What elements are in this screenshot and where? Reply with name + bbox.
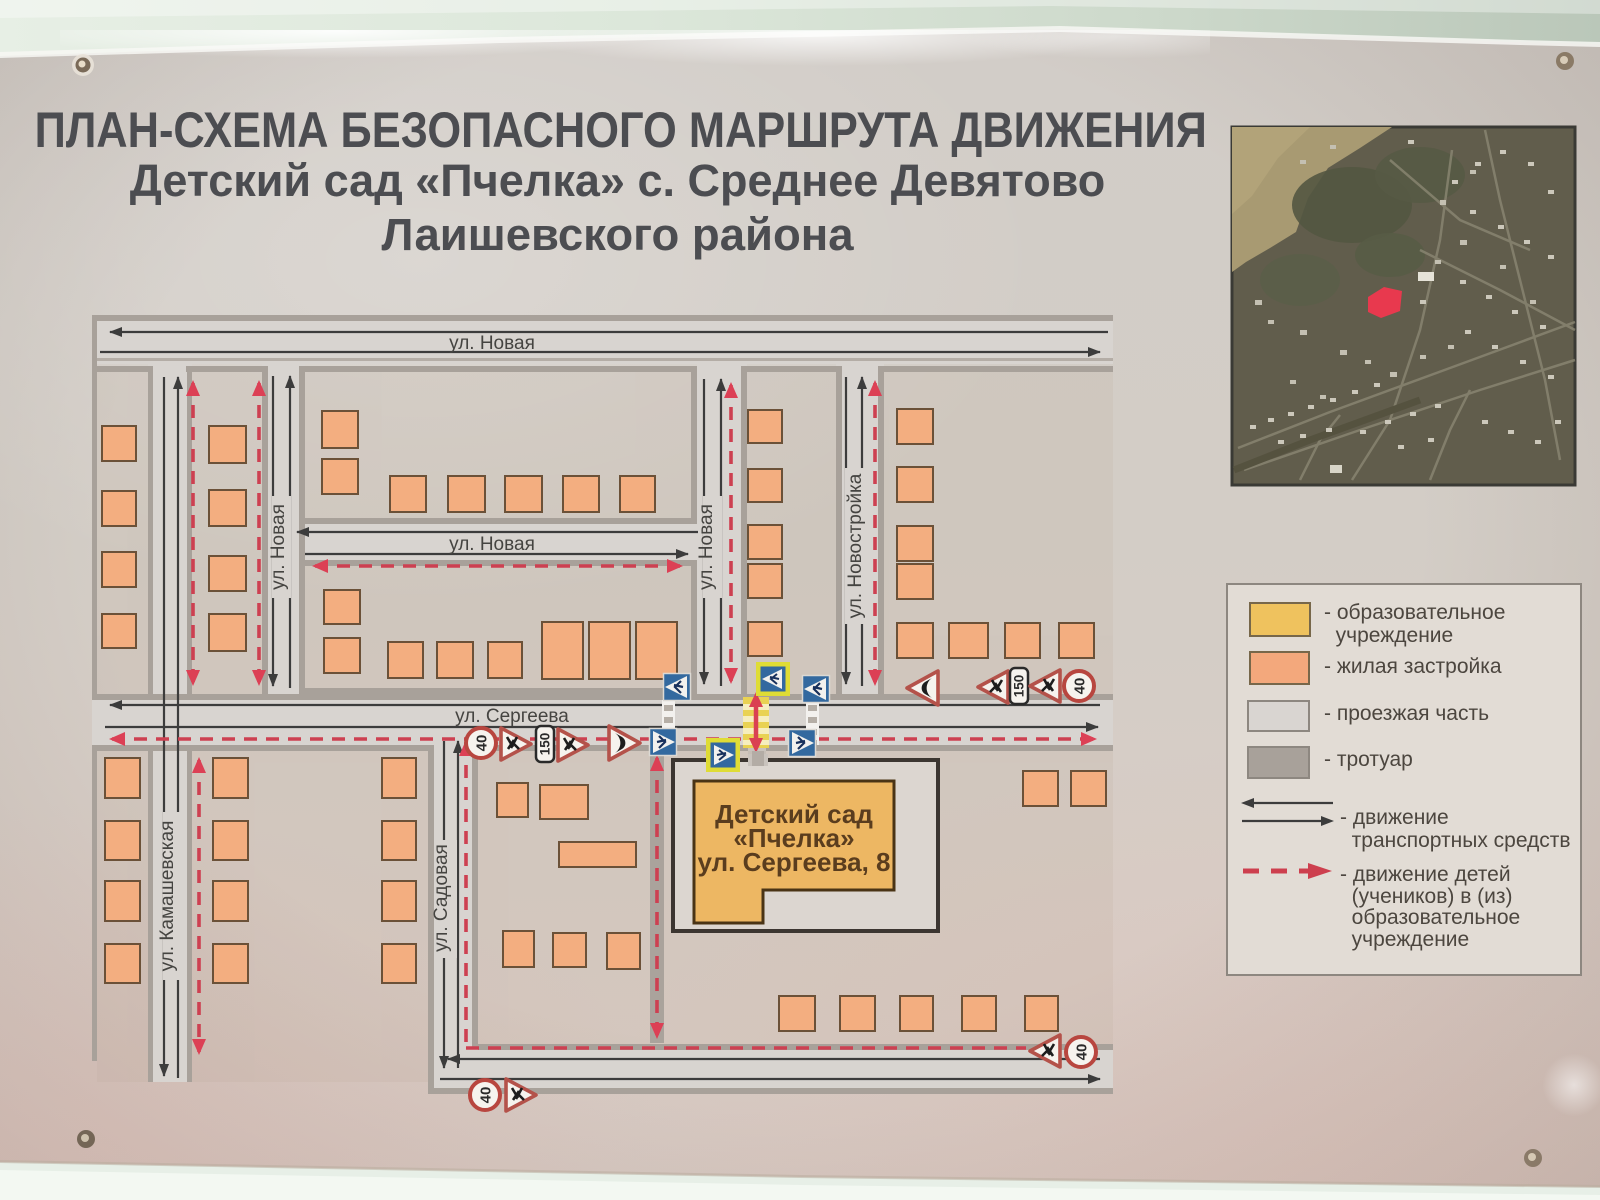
svg-text:ул. Новая: ул. Новая (449, 333, 535, 354)
svg-text:ул. Сергеева, 8: ул. Сергеева, 8 (698, 847, 891, 877)
svg-text:ул. Садовая: ул. Садовая (431, 844, 452, 952)
svg-text:ул. Новая: ул. Новая (696, 504, 717, 590)
svg-text:ул. Новостройка: ул. Новостройка (845, 473, 866, 618)
svg-text:ул. Сергеева: ул. Сергеева (455, 706, 569, 727)
svg-text:ул. Новая: ул. Новая (268, 504, 289, 590)
svg-text:ул. Новая: ул. Новая (449, 534, 535, 555)
svg-text:ул. Камашевская: ул. Камашевская (157, 821, 178, 972)
